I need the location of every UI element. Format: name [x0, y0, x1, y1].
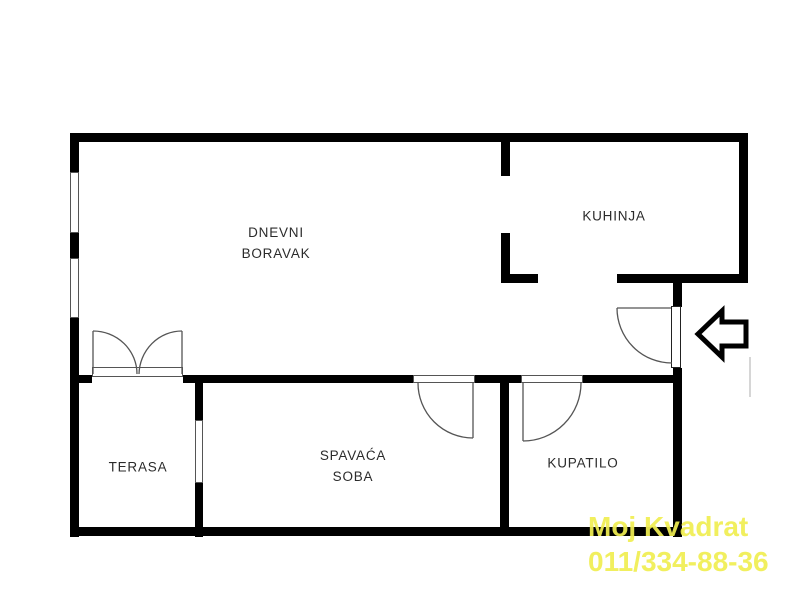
bedroom-door-sill — [413, 375, 475, 383]
wall-middle-4 — [583, 375, 673, 383]
wall-middle-1 — [70, 375, 92, 383]
french-door-sill — [92, 367, 183, 377]
bathroom-door-swing-icon — [523, 383, 581, 441]
room-label-kuhinja: KUHINJA — [582, 206, 645, 227]
bathroom-door-sill — [521, 375, 583, 383]
watermark: Moj Kvadrat 011/334-88-36 — [588, 509, 769, 579]
room-label-kupatilo: KUPATILO — [547, 453, 618, 474]
wall-top — [70, 133, 748, 142]
wall-kitchen-partition-upper — [501, 133, 510, 176]
wall-kitchen-bottom — [617, 274, 748, 283]
watermark-line-1: Moj Kvadrat — [588, 509, 769, 544]
wall-left-upper — [70, 133, 79, 172]
wall-kitchen-partition-foot — [501, 274, 538, 283]
entrance-arrow-icon — [698, 311, 746, 357]
floor-plan: DNEVNI BORAVAK KUHINJA TERASA SPAVAĆA SO… — [0, 0, 800, 598]
wall-entry-stub — [673, 283, 682, 307]
entry-door-leaf — [671, 306, 681, 368]
wall-left-lower — [70, 318, 79, 537]
room-label-dnevni-boravak: DNEVNI BORAVAK — [242, 222, 311, 264]
bedroom-door-swing-icon — [418, 383, 473, 438]
wall-bedroom-bathroom-divider — [500, 383, 509, 527]
window-left-1 — [70, 172, 79, 233]
wall-left-mid — [70, 233, 79, 258]
wall-right-upper — [739, 133, 748, 283]
room-label-spavaca-soba: SPAVAĆA SOBA — [320, 445, 386, 487]
wall-middle-3 — [475, 375, 521, 383]
room-label-terasa: TERASA — [109, 457, 168, 478]
wall-terasa-right-upper — [195, 375, 203, 420]
window-left-2 — [70, 258, 79, 318]
entry-door-swing-icon — [617, 308, 672, 363]
wall-middle-2 — [183, 375, 413, 383]
watermark-line-2: 011/334-88-36 — [588, 544, 769, 579]
window-terasa — [195, 420, 203, 483]
